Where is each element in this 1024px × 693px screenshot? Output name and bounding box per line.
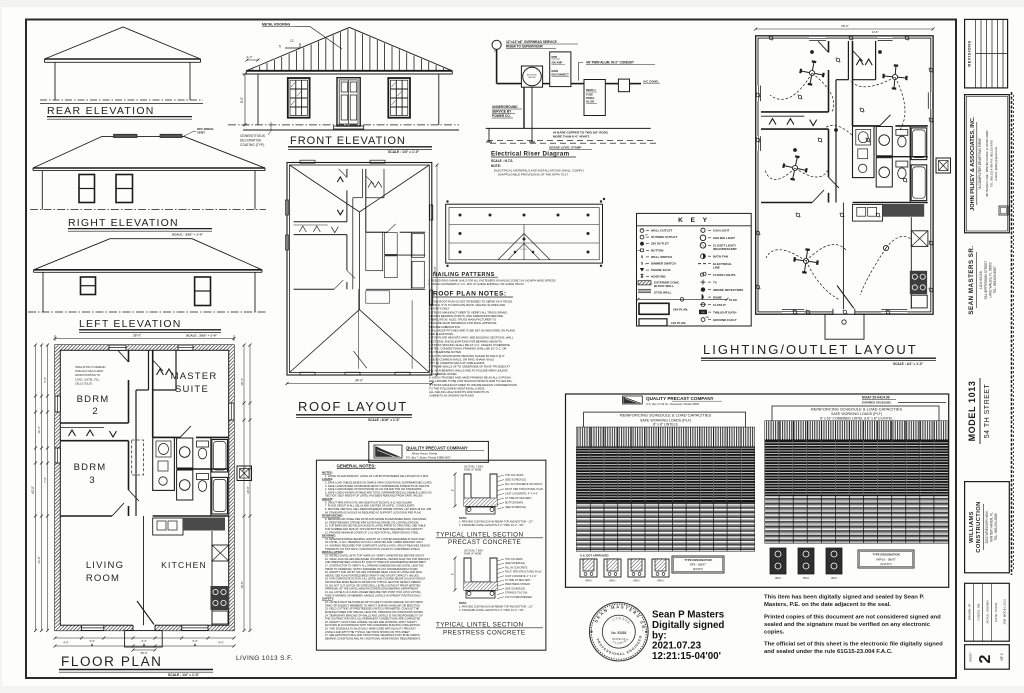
svg-text:TYPE DESIGNATION: TYPE DESIGNATION <box>684 558 711 562</box>
svg-text:SCALE : 1/4" = 1'-0": SCALE : 1/4" = 1'-0" <box>893 362 924 366</box>
svg-text:Electrical Riser Diagram: Electrical Riser Diagram <box>491 151 570 158</box>
svg-text:sealed and the signature must: sealed and the signature must be verifie… <box>764 622 931 628</box>
svg-text:ROUT. PER STRUCTURAL PLAN: ROUT. PER STRUCTURAL PLAN <box>505 571 542 574</box>
svg-text:DATE: 7/21/21: DATE: 7/21/21 <box>994 602 998 622</box>
svg-text:28'-0": 28'-0" <box>841 24 849 28</box>
svg-text:NOTE:: NOTE: <box>459 601 467 605</box>
svg-text:4'-0": 4'-0" <box>63 641 69 645</box>
svg-text:SECTION. SELF WEIGHT OF LINTEL: SECTION. SELF WEIGHT OF LINTEL HAS BEEN … <box>325 494 423 498</box>
svg-text:8": 8" <box>452 573 455 575</box>
svg-text:8": 8" <box>452 489 455 491</box>
svg-text:10'-4": 10'-4" <box>240 378 244 385</box>
svg-text:TYPICAL LINTEL SECTION: TYPICAL LINTEL SECTION <box>436 621 523 628</box>
svg-text:12"x12"x6" OVERHEAD SERVICE: 12"x12"x6" OVERHEAD SERVICE <box>506 40 557 44</box>
svg-text:26. THIS SCHEDULE IS VALID ONL: 26. THIS SCHEDULE IS VALID ONLY WHEN USE… <box>325 627 416 631</box>
svg-text:SMOKE DETECTORS: SMOKE DETECTORS <box>713 288 743 292</box>
svg-text:U.S. Hwy 17-92 So., Davenport,: U.S. Hwy 17-92 So., Davenport, Florida 3… <box>646 402 700 406</box>
svg-text:NOTE:: NOTE: <box>459 516 467 520</box>
svg-text:(ACTUAL 7 5/8"): (ACTUAL 7 5/8") <box>464 465 483 469</box>
svg-text:DIMMER SWITCH: DIMMER SWITCH <box>651 262 676 266</box>
svg-text:WALL OUTLET: WALL OUTLET <box>651 229 672 233</box>
svg-text:MANUFACTURER FOR SPECIAL LENGT: MANUFACTURER FOR SPECIAL LENGTHS, OPENIN… <box>325 610 423 614</box>
svg-text:SCALE : N.T.S.: SCALE : N.T.S. <box>491 159 513 163</box>
svg-text:MAIN: MAIN <box>552 69 559 73</box>
svg-text:CHECK: SM: CHECK: SM <box>977 603 981 620</box>
svg-text:WP: WP <box>645 235 649 237</box>
svg-text:$: $ <box>641 262 643 266</box>
svg-text:METER: METER <box>529 77 537 79</box>
svg-text:U.S. DOT APPROVED: U.S. DOT APPROVED <box>580 554 609 558</box>
svg-text:AT TIME OF DELIVERY: AT TIME OF DELIVERY <box>505 579 531 582</box>
svg-text:EXPIRES 07/14/2025: EXPIRES 07/14/2025 <box>862 401 891 405</box>
svg-text:LICENSE: LICENSE <box>611 616 631 625</box>
svg-text:K E Y: K E Y <box>678 217 710 224</box>
svg-text:PHONE JACK: PHONE JACK <box>651 268 672 272</box>
svg-text:GFI: GFI <box>706 317 710 319</box>
svg-text:[8x8-B/T]: [8x8-B/T] <box>693 568 703 571</box>
svg-text:2. SPACE FASTENERS 4" O.C. MIN: 2. SPACE FASTENERS 4" O.C. MIN. AT GABLE… <box>428 282 525 286</box>
svg-text:7'-4": 7'-4" <box>43 477 47 483</box>
svg-text:8K16: 8K16 <box>831 577 837 580</box>
svg-text:STRANDS 7/16" DIA.: STRANDS 7/16" DIA. <box>505 592 528 595</box>
svg-text:The official set of this sheet: The official set of this sheet is the el… <box>764 642 943 648</box>
svg-text:14. SHORING REQUIRED FOR COMPO: 14. SHORING REQUIRED FOR COMPOSITE LINTE… <box>325 544 430 548</box>
svg-text:METAL ROOFING: METAL ROOFING <box>262 23 290 27</box>
svg-text:BDRM: BDRM <box>74 462 107 473</box>
svg-text:ROOF LAYOUT: ROOF LAYOUT <box>298 399 408 414</box>
svg-text:MORE THAN 6'-0" APART.: MORE THAN 6'-0" APART. <box>553 134 590 138</box>
svg-text:BDRM: BDRM <box>77 394 110 405</box>
svg-text:CELLS SOLID.: CELLS SOLID. <box>75 381 93 385</box>
svg-text:BATH FAN: BATH FAN <box>713 254 728 258</box>
svg-text:No. 53338: No. 53338 <box>611 631 626 635</box>
svg-text:FOR NUMBER AND SIZE OF TOP AND: FOR NUMBER AND SIZE OF TOP AND BOTTOM BA… <box>325 527 423 531</box>
svg-text:WILLIAMS: WILLIAMS <box>969 511 975 543</box>
svg-text:PRESTRESS STRAND: PRESTRESS STRAND <box>505 583 530 586</box>
svg-text:(SEE SCHEDULE): (SEE SCHEDULE) <box>505 587 525 590</box>
svg-text:SERVICE BY: SERVICE BY <box>492 110 512 114</box>
svg-text:2. STANDARD LINTEL LENGTHS 2': 2. STANDARD LINTEL LENGTHS 2'-0" THRU 24… <box>459 609 524 612</box>
svg-text:TOP COL.BARS: TOP COL.BARS <box>505 474 524 477</box>
svg-text:3215 WRECKER HWY.: 3215 WRECKER HWY. <box>985 510 989 543</box>
svg-text:FILL W/ CONCRETE: FILL W/ CONCRETE <box>505 566 528 569</box>
svg-text:DISCONNECT: DISCONNECT <box>552 73 570 77</box>
svg-text:PRESTRESS CONCRETE: PRESTRESS CONCRETE <box>443 630 525 637</box>
svg-text:REINFORCING SCHEDULE & LOAD CA: REINFORCING SCHEDULE & LOAD CAPACITIES <box>620 413 712 418</box>
svg-text:REAR ELEVATION: REAR ELEVATION <box>47 105 155 117</box>
svg-text:IN BLACK CELLS AWAY: IN BLACK CELLS AWAY <box>75 369 104 373</box>
svg-text:2021.07.23: 2021.07.23 <box>652 641 702 652</box>
svg-text:8K16: 8K16 <box>775 577 781 580</box>
svg-text:12: 12 <box>290 39 294 43</box>
svg-text:DRAWN: JP: DRAWN: JP <box>968 604 972 620</box>
svg-text:TOP COL.BARS: TOP COL.BARS <box>505 558 523 561</box>
svg-text:2: 2 <box>92 406 97 417</box>
svg-text:200 AMP: 200 AMP <box>552 61 563 65</box>
svg-text:8RF16 - 0B/0T: 8RF16 - 0B/0T <box>876 558 896 562</box>
svg-text:LAKE WALES, FL 33853: LAKE WALES, FL 33853 <box>989 262 993 297</box>
svg-text:LIVING: LIVING <box>86 560 124 571</box>
svg-text:ROUT. PER STRUCTURAL PLAN: ROUT. PER STRUCTURAL PLAN <box>505 488 543 491</box>
svg-text:SCALE : 3/16" = 1'-0": SCALE : 3/16" = 1'-0" <box>368 418 400 422</box>
svg-text:UNDERGROUND: UNDERGROUND <box>492 105 518 109</box>
svg-text:40'-0": 40'-0" <box>31 486 35 494</box>
svg-text:KITCHEN: KITCHEN <box>161 560 207 570</box>
svg-text:6" O.C.: 6" O.C. <box>520 249 527 251</box>
svg-text:LIVING 1013 S.F.: LIVING 1013 S.F. <box>236 655 293 662</box>
svg-text:CEILING LIGHT: CEILING LIGHT <box>713 236 735 240</box>
svg-text:4/0 TWIN ALUM. IN 2" CONDUIT: 4/0 TWIN ALUM. IN 2" CONDUIT <box>586 61 634 65</box>
svg-text:INCANDESCENT: INCANDESCENT <box>713 247 737 251</box>
svg-text:A/C COND.: A/C COND. <box>643 80 659 84</box>
svg-text:POINTS MARKED ON MEMBER; HANDL: POINTS MARKED ON MEMBER; HANDLE LINTELS … <box>325 593 421 597</box>
svg-text:2X4 PLAN.: 2X4 PLAN. <box>673 307 688 311</box>
svg-text:18'-8": 18'-8" <box>240 581 244 588</box>
svg-text:GRADE LEVEL STAMP: GRADE LEVEL STAMP <box>549 146 581 150</box>
svg-text:JOHN PILKEY & ASSOCIATES, INC.: JOHN PILKEY & ASSOCIATES, INC. <box>970 116 976 211</box>
svg-text:GROUND FAULT: GROUND FAULT <box>713 318 737 322</box>
svg-text:(ACTUAL 7 5/8"): (ACTUAL 7 5/8") <box>464 549 483 553</box>
svg-text:AND PRESTRESSED LINTELS BY QUA: AND PRESTRESSED LINTELS BY QUALITY PRECA… <box>325 560 426 564</box>
svg-text:8K16: 8K16 <box>803 577 809 580</box>
svg-text:PLAN.: PLAN. <box>729 298 738 302</box>
svg-text:Masters, P.E. on the date adja: Masters, P.E. on the date adjacent to th… <box>764 602 891 608</box>
svg-text:WALL SWITCH: WALL SWITCH <box>651 255 672 259</box>
svg-text:FLOOR PLAN: FLOOR PLAN <box>61 654 163 669</box>
svg-text:SCALE : 1/4" = 1'-0": SCALE : 1/4" = 1'-0" <box>168 673 200 677</box>
svg-text:copies.: copies. <box>764 630 785 636</box>
svg-text:4'-0": 4'-0" <box>218 641 224 645</box>
svg-text:8F8-3: 8F8-3 <box>657 580 664 583</box>
svg-text:8F8-0: 8F8-0 <box>585 580 592 583</box>
svg-text:OUTSIDE OUTLET: OUTSIDE OUTLET <box>651 235 677 239</box>
svg-text:2'-0": 2'-0" <box>247 55 253 59</box>
svg-text:QUALITY PRECAST COMPANY: QUALITY PRECAST COMPANY <box>406 446 468 451</box>
svg-text:This item has been digitally s: This item has been digitally signed and … <box>764 595 925 601</box>
svg-text:INSULATION TO REMAIN: INSULATION TO REMAIN <box>75 365 106 369</box>
svg-text:5: 5 <box>279 45 281 49</box>
svg-text:8F8-1: 8F8-1 <box>609 580 616 583</box>
svg-text:TEL: 863.333.4708 FAX: 86: TEL: 863.333.4708 FAX: 863.333.4708 <box>990 140 994 187</box>
svg-text:1. LINTEL FILLED W/GROUT. LIN: 1. LINTEL FILLED W/GROUT. LINTEL W/ 1-#5… <box>325 474 429 478</box>
svg-text:NOA# 20-0414.09: NOA# 20-0414.09 <box>862 396 890 400</box>
svg-text:BUTTON: BUTTON <box>651 248 663 252</box>
svg-text:FUSE: FUSE <box>586 93 593 97</box>
svg-text:RISER TO SUPERVISOR: RISER TO SUPERVISOR <box>506 45 543 49</box>
svg-text:Sean P Masters: Sean P Masters <box>652 610 725 621</box>
svg-text:1. USE 8D RING-SHANK NAILS FOR: 1. USE 8D RING-SHANK NAILS FOR ALL FASTE… <box>428 278 556 282</box>
svg-text:WINTER HAVEN, FL: WINTER HAVEN, FL <box>990 512 994 542</box>
svg-text:DECORATIVE: DECORATIVE <box>240 139 262 143</box>
svg-text:CONSTRUCTION: CONSTRUCTION <box>976 501 982 553</box>
svg-text:[8x16-B/T]: [8x16-B/T] <box>880 563 891 566</box>
svg-text:BOTTOM BARS: BOTTOM BARS <box>505 502 523 505</box>
svg-text:CABINETS AS SHOWN ON PLANS: CABINETS AS SHOWN ON PLANS <box>429 394 474 398</box>
svg-text:54 TH STREET: 54 TH STREET <box>984 384 991 439</box>
svg-text:MASTER: MASTER <box>171 371 218 382</box>
svg-text:3: 3 <box>89 475 94 486</box>
svg-text:8F8-2: 8F8-2 <box>633 580 640 583</box>
svg-text:VENT: VENT <box>197 131 205 135</box>
svg-text:334 JEFFERSON STREET: 334 JEFFERSON STREET <box>984 261 988 300</box>
svg-text:30'-8": 30'-8" <box>246 486 250 494</box>
svg-text:AT TIME OF DELIVERY: AT TIME OF DELIVERY <box>505 497 532 500</box>
svg-text:JOB: MODEL 1013: JOB: MODEL 1013 <box>1003 599 1007 625</box>
svg-text:PANEL,: PANEL, <box>586 96 596 100</box>
svg-text:220 OUTLET: 220 OUTLET <box>651 242 669 246</box>
svg-text:TEL: 863.294.2808: TEL: 863.294.2808 <box>994 513 998 540</box>
svg-text:14'-8": 14'-8" <box>872 30 879 34</box>
svg-text:FLOOD LIGHTS: FLOOD LIGHTS <box>713 273 735 277</box>
svg-text:HOSE BIB: HOSE BIB <box>651 275 666 279</box>
svg-text:(SEE SCHEDULE): (SEE SCHEDULE) <box>505 479 526 482</box>
svg-text:LIGHTING/OUTLET LAYOUT: LIGHTING/OUTLET LAYOUT <box>703 342 918 357</box>
svg-text:487 BURNS LANE - WINTER HAVE: 487 BURNS LANE - WINTER HAVEN, FLORIDA 3… <box>985 130 989 197</box>
svg-text:SCALE: SHOWN: SCALE: SHOWN <box>986 600 990 623</box>
svg-text:40 CIR.: 40 CIR. <box>586 100 595 104</box>
svg-text:LINE: LINE <box>713 265 720 269</box>
svg-text:POWER CO.: POWER CO. <box>492 114 511 118</box>
svg-text:12'-4": 12'-4" <box>37 426 41 433</box>
svg-text:and sealed under the rule 61G1: and sealed under the rule 61G15-23.004 F… <box>764 649 893 655</box>
svg-text:REVISIONS: REVISIONS <box>967 40 972 66</box>
svg-text:FLAT/LIT: FLAT/LIT <box>713 303 726 307</box>
svg-text:8" x 16" COMBINED LINTEL & 8": 8" x 16" COMBINED LINTEL & 8" x 8" U-LIN… <box>820 416 893 420</box>
svg-text:Winter Haven, Florida: Winter Haven, Florida <box>412 452 438 456</box>
svg-text:TV: TV <box>713 280 717 284</box>
svg-text:CEMENTITIOUS: CEMENTITIOUS <box>240 134 266 138</box>
svg-text:NOTE:: NOTE: <box>491 164 501 168</box>
svg-text:TYPE DESIGNATION: TYPE DESIGNATION <box>872 553 899 557</box>
svg-text:5'-4": 5'-4" <box>43 377 47 383</box>
svg-text:SCALE : 3/16" = 1'-0": SCALE : 3/16" = 1'-0" <box>172 232 203 236</box>
svg-text:SEAN MASTERS SR.: SEAN MASTERS SR. <box>968 245 975 314</box>
svg-text:W/APPLICABLE PROVISIONS OF THE: W/APPLICABLE PROVISIONS OF THE NFPA 70-1… <box>498 173 569 177</box>
svg-text:12. PROVIDE MINIMUM COVER OF 1: 12. PROVIDE MINIMUM COVER OF 1-1/2 INCH … <box>325 530 419 534</box>
svg-text:LEFT ELEVATION: LEFT ELEVATION <box>79 318 182 330</box>
svg-text:270 KSI PRESTRESSED: 270 KSI PRESTRESSED <box>505 596 532 599</box>
svg-text:ELECTRIC: ELECTRIC <box>527 75 537 77</box>
svg-text:RIGHT ELEVATION: RIGHT ELEVATION <box>68 217 179 229</box>
svg-text:FILL W/ CONCRETE OR GROUT,: FILL W/ CONCRETE OR GROUT, <box>505 483 543 486</box>
svg-text:19. FOR COMPOSITE ACTION, FILL: 19. FOR COMPOSITE ACTION, FILL LINTEL AN… <box>325 577 426 581</box>
svg-text:GENERAL NOTES:: GENERAL NOTES: <box>337 464 377 469</box>
svg-text:NEMA 1: NEMA 1 <box>586 88 596 92</box>
svg-text:SCALE : 3/16" = 1'-0": SCALE : 3/16" = 1'-0" <box>186 333 217 337</box>
svg-text:$: $ <box>641 255 643 259</box>
svg-text:SHEET: SHEET <box>969 652 973 662</box>
svg-text:OF 3: OF 3 <box>1000 653 1004 660</box>
svg-text:PRECAST CONCRETE: PRECAST CONCRETE <box>448 539 521 546</box>
svg-text:Digitally signed: Digitally signed <box>652 620 724 631</box>
svg-text:FRONT ELEVATION: FRONT ELEVATION <box>290 135 406 147</box>
svg-text:by:: by: <box>652 630 667 641</box>
svg-text:SUITE: SUITE <box>175 384 209 395</box>
svg-text:"A COMPUTER DRAFTING FIRM": "A COMPUTER DRAFTING FIRM" <box>978 137 982 190</box>
svg-text:MTR: MTR <box>552 55 558 59</box>
svg-text:12:21:15-04'00': 12:21:15-04'00' <box>652 651 721 662</box>
svg-text:LIC# 63106: LIC# 63106 <box>979 271 983 289</box>
svg-text:CAST CONCRETE, 4" X 4'-0": CAST CONCRETE, 4" X 4'-0" <box>505 492 538 495</box>
svg-text:LOADS:: LOADS: <box>322 477 333 481</box>
svg-text:COATING (TYP): COATING (TYP) <box>240 143 264 147</box>
svg-text:ROOF PLAN NOTES:: ROOF PLAN NOTES: <box>433 291 507 298</box>
svg-text:(SEE SCHEDULE): (SEE SCHEDULE) <box>505 506 526 509</box>
svg-text:2. STANDARD LINTEL LENGTHS 2': 2. STANDARD LINTEL LENGTHS 2'-0" THRU 24… <box>459 524 524 527</box>
svg-text:STUD WALL: STUD WALL <box>654 290 672 294</box>
svg-text:1X4 PLAN.: 1X4 PLAN. <box>671 321 686 325</box>
svg-text:8'-0": 8'-0" <box>240 97 244 103</box>
svg-text:34'-0": 34'-0" <box>355 379 363 383</box>
svg-text:Printed copies of this documen: Printed copies of this document are not … <box>764 615 941 621</box>
svg-text:MODEL 1013: MODEL 1013 <box>967 381 977 442</box>
svg-text:2: 2 <box>977 654 994 663</box>
svg-text:DOME: DOME <box>713 295 722 299</box>
svg-text:CONC. LINTEL, FILL: CONC. LINTEL, FILL <box>75 377 100 381</box>
svg-text:P.O. Box 7, Eloise, Florida 33: P.O. Box 7, Eloise, Florida 33880-0007 <box>406 456 451 460</box>
svg-text:TWILIGHT BATH: TWILIGHT BATH <box>713 310 736 314</box>
svg-text:E-MAIL: jfpilkey@gmail.com: E-MAIL: jfpilkey@gmail.com <box>994 146 998 180</box>
svg-text:BLOCK WALL: BLOCK WALL <box>654 284 674 288</box>
svg-text:(SEE SCHEDULE): (SEE SCHEDULE) <box>505 562 525 565</box>
svg-text:28'-0": 28'-0" <box>133 333 141 337</box>
svg-text:CAN LIGHT: CAN LIGHT <box>713 229 729 233</box>
svg-text:ROOM: ROOM <box>86 573 120 584</box>
svg-text:BEARING CONDITIONS AND ANY ADD: BEARING CONDITIONS AND ANY ADDITIONAL RE… <box>325 637 421 641</box>
svg-text:TYPICAL LINTEL SECTION: TYPICAL LINTEL SECTION <box>436 531 523 538</box>
svg-text:16'-8": 16'-8" <box>37 556 41 563</box>
svg-text:FROM POINTING TO: FROM POINTING TO <box>75 373 100 377</box>
svg-text:8" x 8" LINTELS: 8" x 8" LINTELS <box>653 423 678 427</box>
svg-text:REINFORCING SCHEDULE & LOAD CA: REINFORCING SCHEDULE & LOAD CAPACITIES <box>811 407 903 412</box>
svg-text:QUALITY PRECAST COMPANY: QUALITY PRECAST COMPANY <box>646 396 714 401</box>
svg-text:TEL: 863.632.6067: TEL: 863.632.6067 <box>993 266 997 293</box>
svg-text:CAST CONCRETE, 4" X 4'-0": CAST CONCRETE, 4" X 4'-0" <box>505 575 537 578</box>
svg-text:8F8 - 0B/0T: 8F8 - 0B/0T <box>690 563 706 567</box>
svg-text:SCALE : 1/4" = 1'-0": SCALE : 1/4" = 1'-0" <box>388 150 420 154</box>
